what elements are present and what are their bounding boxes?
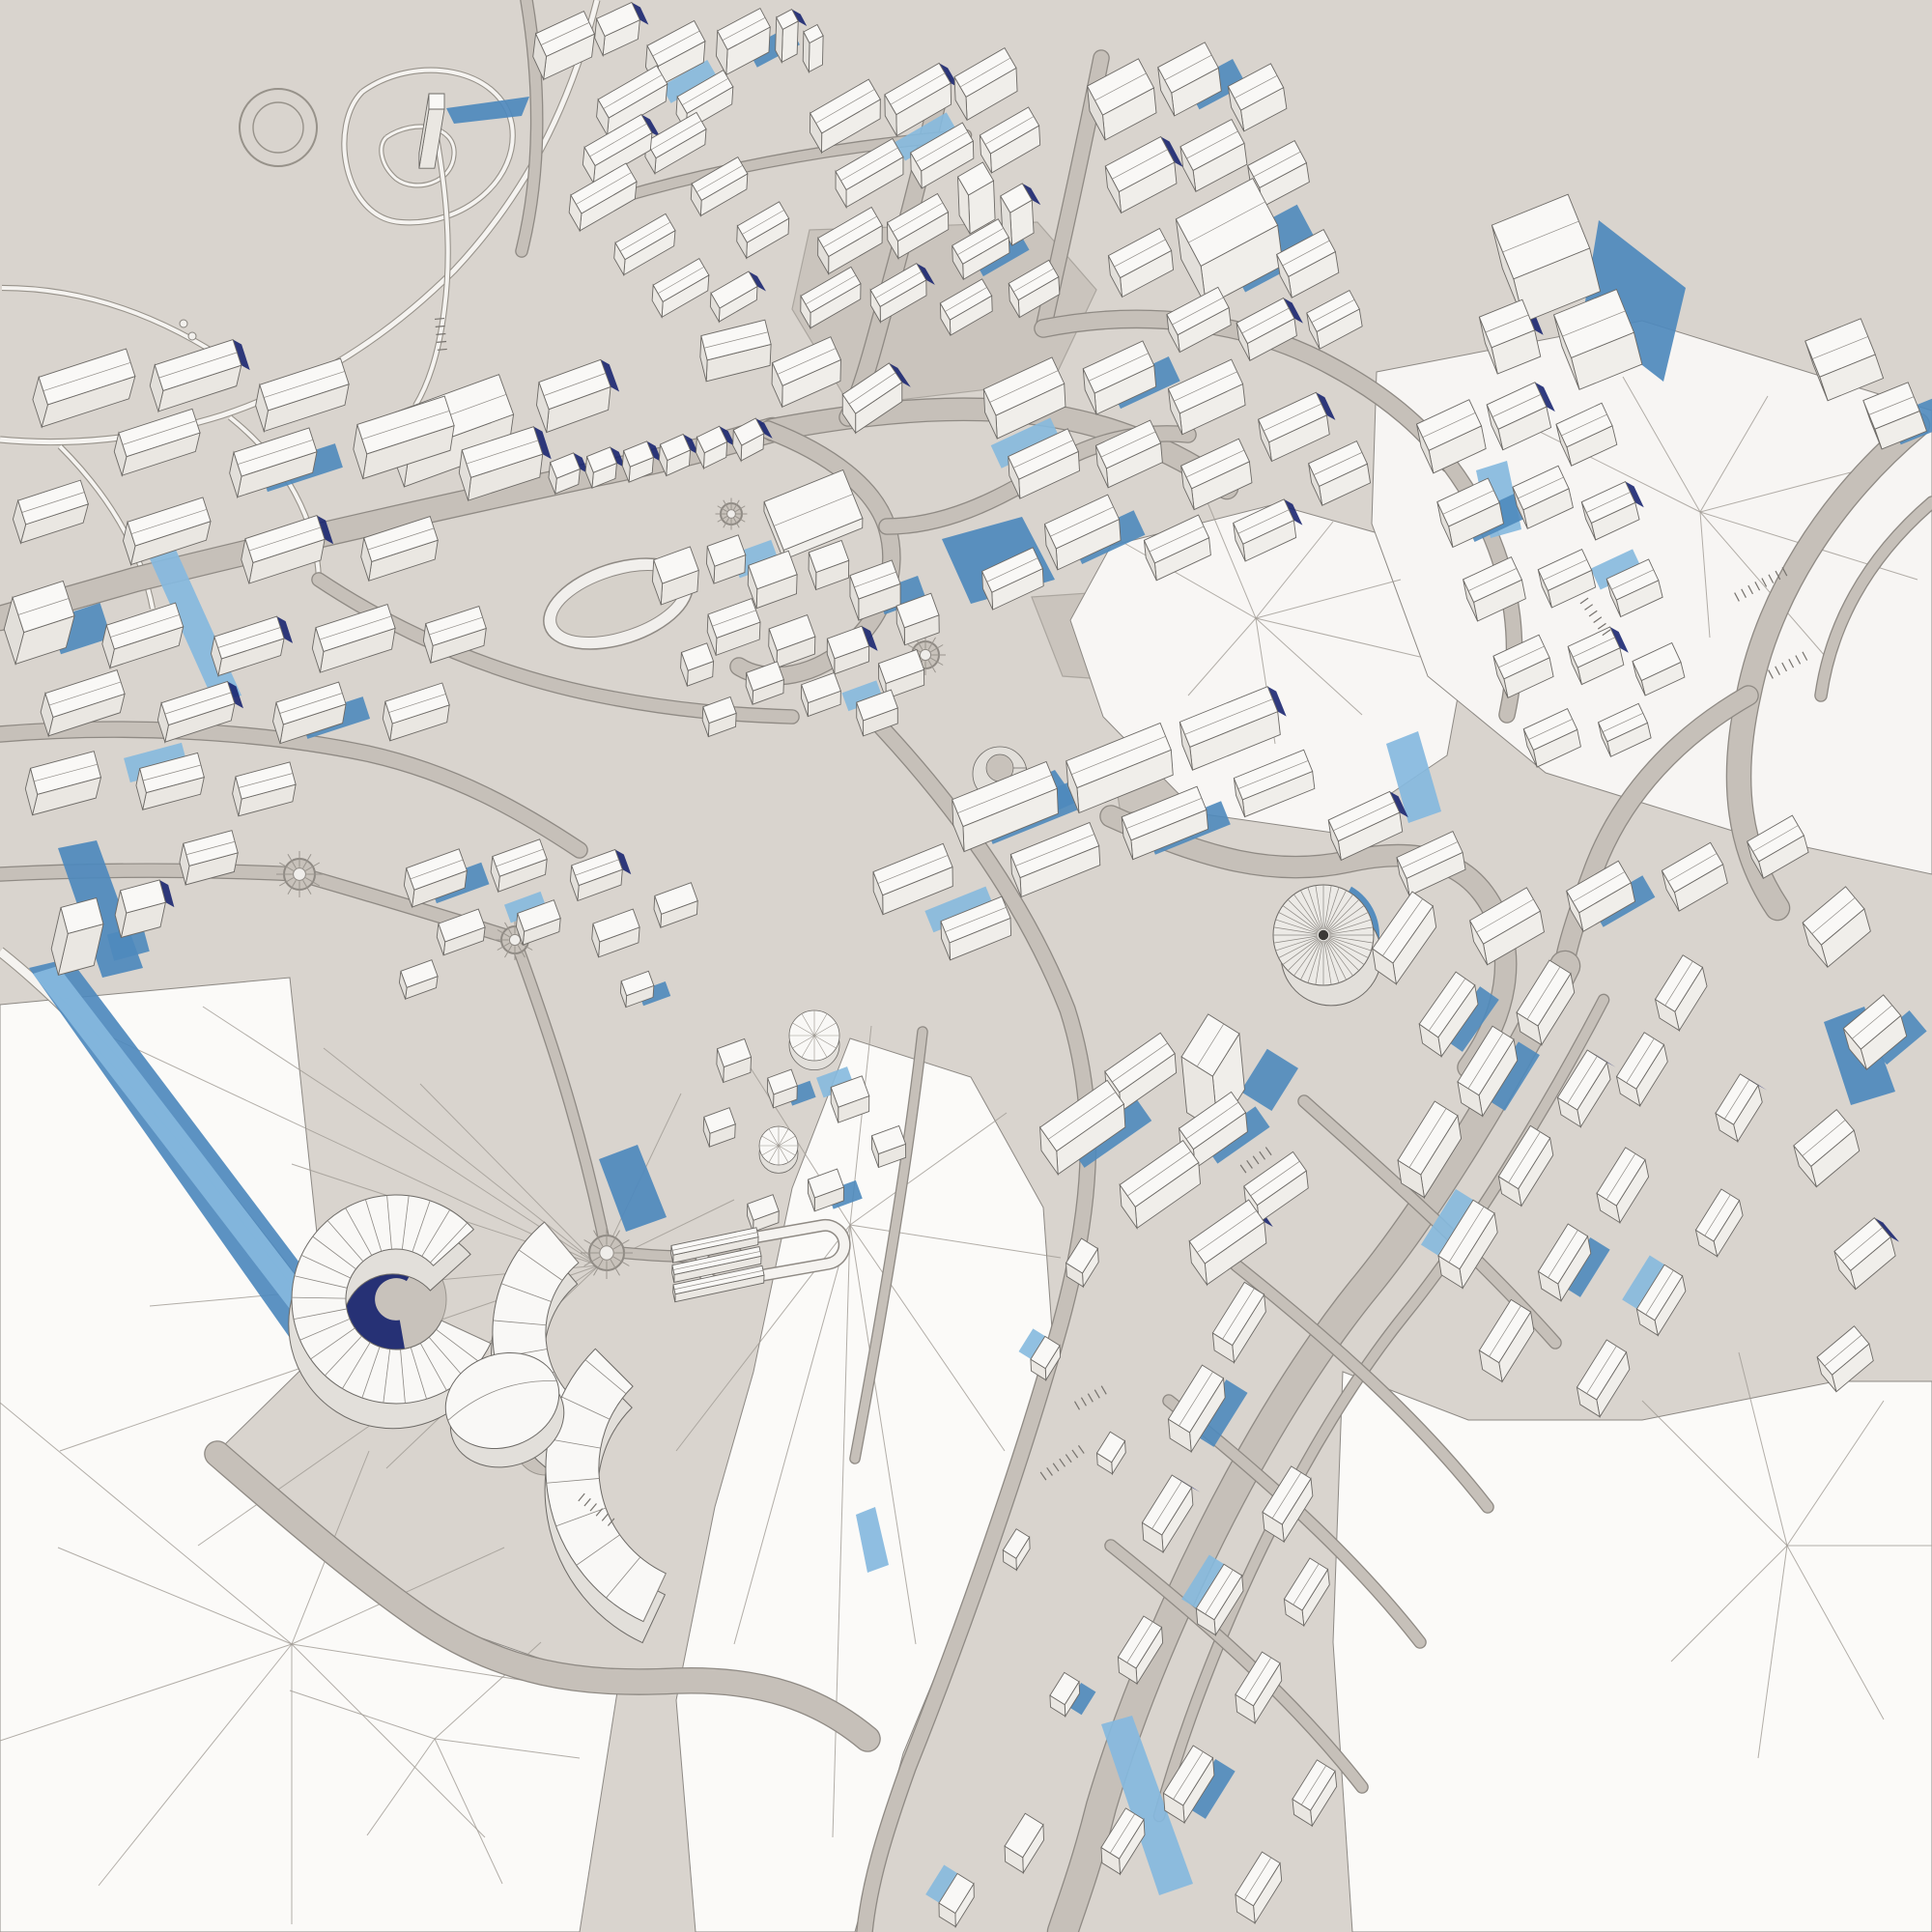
park-rock	[180, 320, 187, 327]
building-roof	[429, 94, 444, 109]
roundabout-island	[294, 868, 306, 881]
building	[776, 10, 799, 63]
building	[803, 25, 823, 72]
roundabout-island	[509, 934, 520, 945]
park-rock	[188, 332, 196, 340]
terrain-plateau	[1333, 1372, 1932, 1932]
roundabout-island	[727, 510, 736, 519]
roundabout-island	[600, 1246, 613, 1260]
roundabout-island	[920, 649, 930, 660]
road	[0, 870, 299, 874]
drum-oculus	[1319, 930, 1328, 940]
city-wireframe-svg	[0, 0, 1932, 1932]
city-3d-render	[0, 0, 1932, 1932]
